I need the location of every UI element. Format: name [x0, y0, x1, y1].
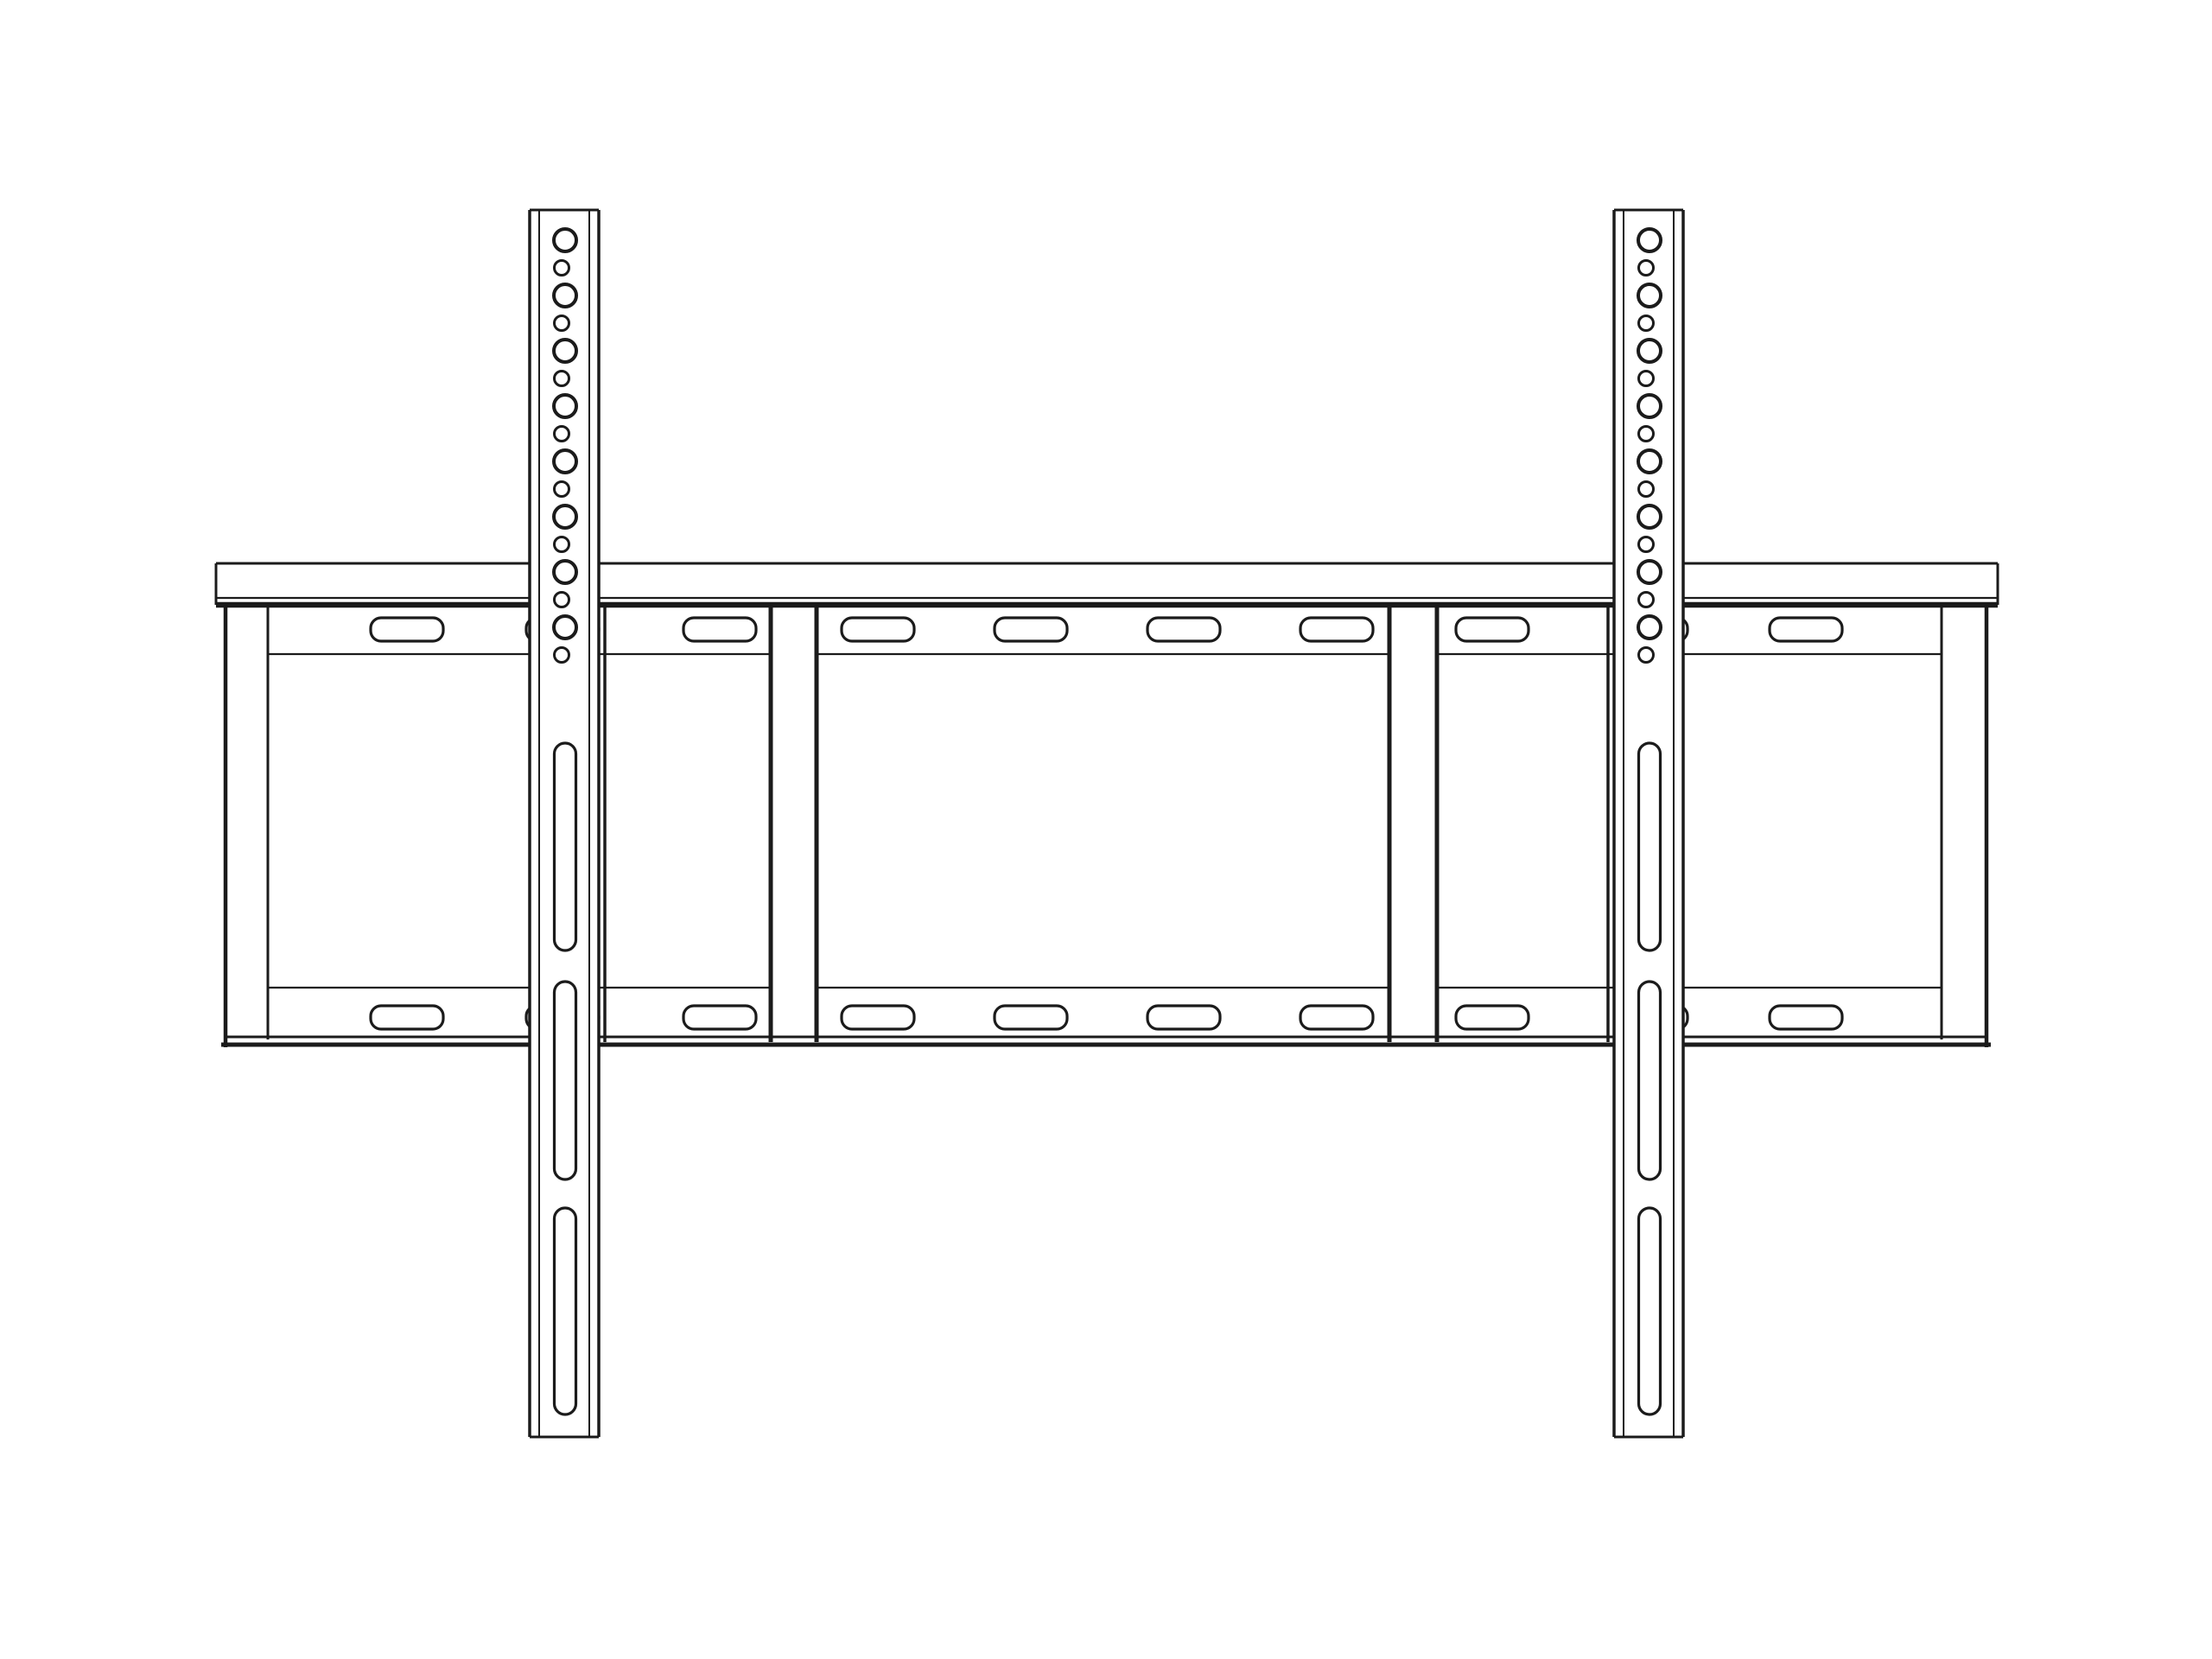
left-rail — [530, 210, 599, 1437]
right-rail — [1614, 210, 1683, 1437]
wall-mount-line-drawing — [0, 0, 2212, 1659]
background — [0, 0, 2212, 1659]
diagram-canvas — [0, 0, 2212, 1659]
